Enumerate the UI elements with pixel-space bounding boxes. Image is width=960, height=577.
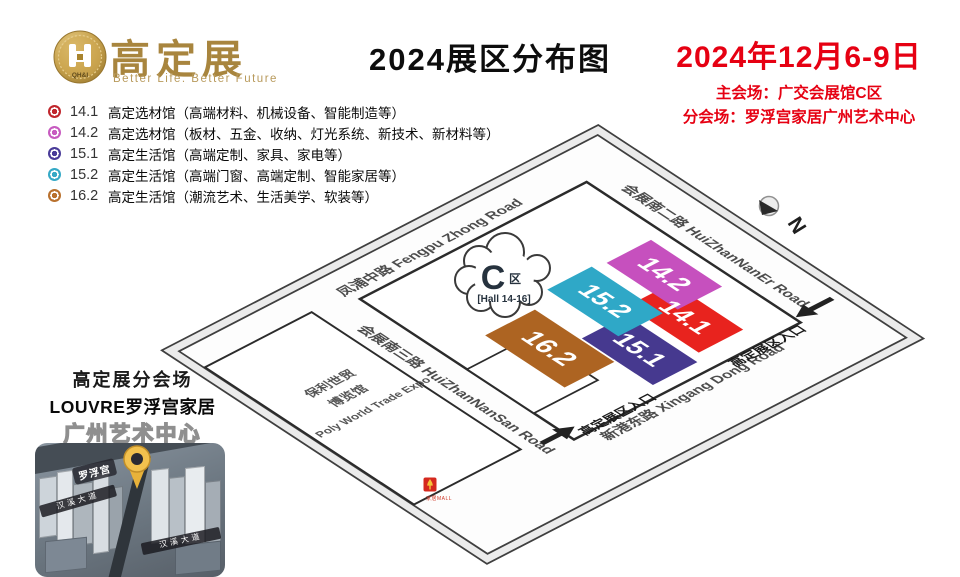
- zone-c-letter: C: [481, 259, 506, 297]
- zone-c-qu: 区: [509, 272, 521, 286]
- location-pin-icon: [117, 443, 157, 491]
- north-label: N: [783, 213, 811, 238]
- map-plan: 会展南二路 HuiZhanNanEr Road 凤浦中路 Fengpu Zhon…: [170, 130, 914, 559]
- branch-aerial-photo: 汉溪大道 汉溪大道 罗浮宫: [35, 443, 225, 577]
- mall-logo-icon: [423, 477, 437, 494]
- branch-brand: LOUVRE罗浮宫家居: [35, 394, 230, 419]
- poster: QH&I 高定展 Better Life. Better Future 2024…: [0, 0, 960, 577]
- mall-logo-caption: 家居MALL: [409, 495, 469, 502]
- branch-heading: 高定展分会场: [35, 366, 230, 392]
- zone-c-hall-range: [Hall 14-16]: [477, 294, 530, 305]
- north-compass-icon: N: [759, 197, 810, 239]
